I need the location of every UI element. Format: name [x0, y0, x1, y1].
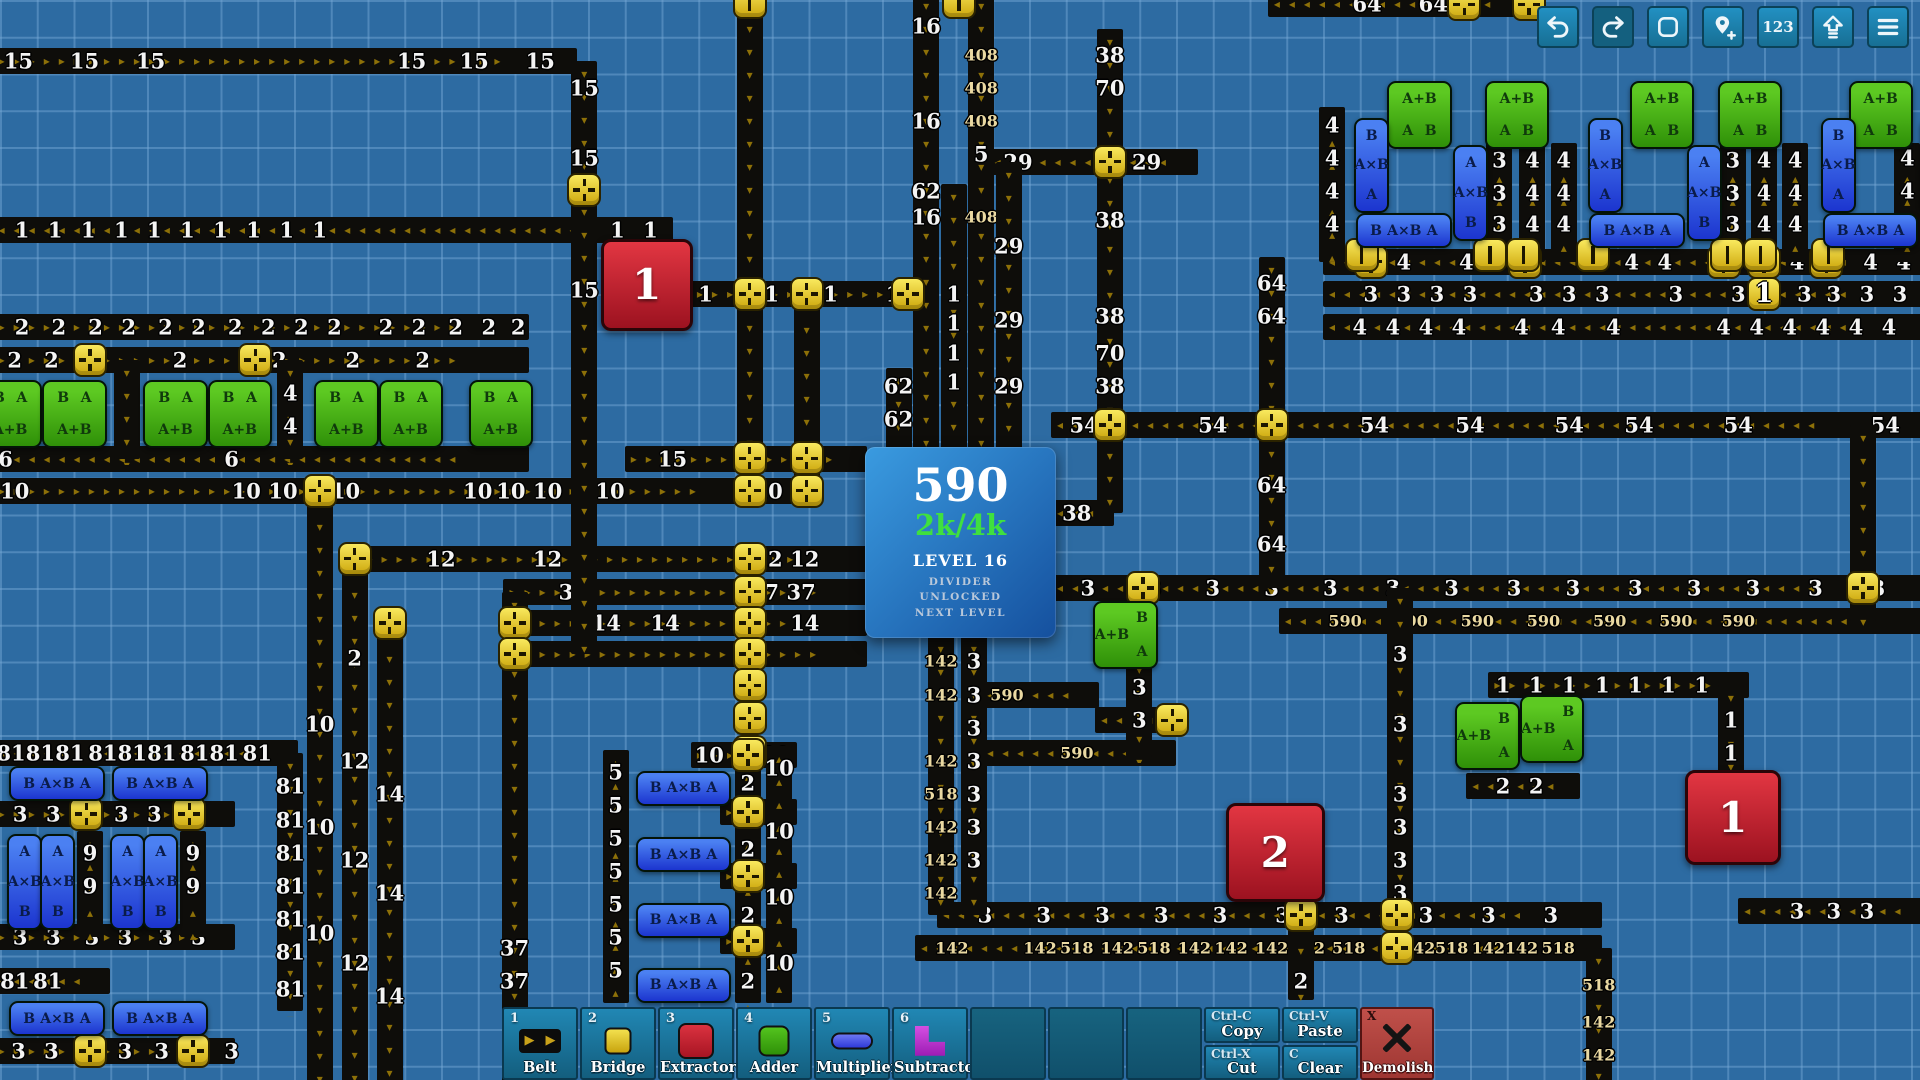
machine-port-label: A — [155, 844, 166, 860]
empty-tool-slot — [1048, 1007, 1124, 1080]
adder-output-col: A+B — [1095, 603, 1128, 667]
conveyor-belt[interactable]: ◂◂◂◂◂◂◂◂◂◂◂333 — [1738, 898, 1920, 924]
belt-item-value: 3 — [967, 814, 982, 839]
belt-item-value: 12 — [533, 546, 562, 571]
machine-adder[interactable]: A+BBA — [1093, 601, 1157, 669]
belt-bridge[interactable] — [1255, 408, 1289, 442]
belt-bridge[interactable] — [1093, 145, 1127, 179]
belt-item-value: 3 — [1397, 282, 1412, 307]
belt-bridge[interactable] — [303, 474, 337, 508]
adder-output-row: A+B — [471, 414, 531, 446]
build-toolbar: 1▶▶Belt2Bridge3Extractor4Adder5Multiplie… — [502, 1007, 1434, 1080]
tool-label: Adder — [738, 1059, 810, 1076]
belt-item-value: 81 — [276, 774, 305, 799]
conveyor-belt[interactable]: ▸▸▸▸▸▸▸▸▸▸▸▸▸▸▸▸▸▸▸▸▸373737 — [503, 579, 867, 605]
adder-inputs-row: AB — [1851, 115, 1911, 147]
belt-item-value: 3 — [1507, 576, 1522, 601]
tool-belt-button[interactable]: 1▶▶Belt — [502, 1007, 578, 1080]
machine-port-label: A — [1893, 223, 1904, 239]
machine-multiplier[interactable]: AA×BB — [7, 834, 42, 930]
machine-adder[interactable]: BAA+B — [42, 380, 106, 448]
machine-adder[interactable]: A+BBA — [1520, 695, 1584, 763]
belt-item-value: 2 — [261, 315, 276, 340]
belt-item-value: 142 — [924, 751, 957, 770]
belt-item-value: 142 — [924, 685, 957, 704]
conveyor-belt[interactable]: ◂◂◂◂◂◂◂◂◂◂◂◂◂◂◂◂◂◂◂◂◂◂◂◂◂◂◂◂◂◂◂◂◂◂◂◂◂◂◂◂… — [1051, 412, 1920, 438]
conveyor-belt[interactable]: ◂◂◂◂◂◂◂◂◂◂◂◂◂◂◂◂◂818181818181818181 — [0, 740, 298, 766]
clear-button[interactable]: CClear — [1282, 1045, 1358, 1080]
belt-item-value: 3 — [1893, 282, 1908, 307]
machine-multiplier[interactable]: BA×BA — [1356, 213, 1452, 248]
conveyor-belt[interactable]: ▴▴▴▴▴▴▴▴▴▴▴▴▴▴5555555 — [603, 750, 629, 1004]
machine-multiplier[interactable]: AA×BB — [40, 834, 75, 930]
box-select-button[interactable] — [1647, 6, 1689, 48]
belt-item-value: 4 — [1514, 315, 1529, 340]
empty-tool-slot — [970, 1007, 1046, 1080]
machine-port-label: B — [1603, 223, 1615, 239]
belt-bridge[interactable] — [1155, 703, 1189, 737]
belt-bridge[interactable] — [733, 668, 767, 702]
conveyor-belt[interactable]: ◂◂◂◂◂◂8181 — [0, 968, 110, 994]
conveyor-belt[interactable]: ▴▴▴▴▴▴99 — [77, 831, 103, 938]
belt-bridge[interactable] — [567, 173, 601, 207]
belt-item-value: 15 — [570, 146, 599, 171]
machine-multiplier[interactable]: BA×BA — [112, 766, 208, 801]
belt-direction-arrows: ▾▾▾▾▾▾▾▾▾▾▾▾▾▾▾▾▾▾▾▾▾▾▾▾▾▾▾ — [377, 623, 403, 1080]
belt-bridge[interactable] — [73, 343, 107, 377]
belt-bridge[interactable] — [172, 797, 206, 831]
belt-item-value: 54 — [1198, 412, 1227, 437]
conveyor-belt[interactable]: ▸▸▸▸▸▸▸▸▸▸▸▸▸▸▸▸▸▸▸▸▸▸▸▸▸▸▸▸▸▸12121212 — [345, 546, 867, 572]
belt-item-value: 408 — [965, 46, 998, 65]
conveyor-belt[interactable]: ▴▴▴▴▴▴▴▴▴4444 — [1319, 107, 1345, 262]
belt-item-value: 10 — [463, 478, 492, 503]
belt-item-value: 5 — [608, 858, 623, 883]
belt-bridge[interactable] — [1093, 408, 1127, 442]
machine-adder[interactable]: BAA+B — [469, 380, 533, 448]
belt-item-value: 3 — [1797, 282, 1812, 307]
tool-hotkey: 1 — [510, 1011, 519, 1026]
tool-bridge-button[interactable]: 2Bridge — [580, 1007, 656, 1080]
belt-bridge[interactable] — [731, 795, 765, 829]
menu-button[interactable] — [1867, 6, 1909, 48]
machine-port-label: A — [1499, 745, 1510, 761]
conveyor-belt[interactable]: ◂◂◂◂◂◂◂◂◂◂◂◂◂◂◂◂◂◂◂◂◂◂◂◂◂◂◂◂◂◂◂◂◂◂◂44444… — [1323, 314, 1920, 340]
machine-port[interactable] — [942, 0, 976, 19]
numbers-overlay-label: 123 — [1762, 18, 1793, 36]
numbers-overlay-button[interactable]: 123 — [1757, 6, 1799, 48]
goal-level-label: LEVEL 16 — [913, 551, 1008, 570]
belt-bridge[interactable] — [790, 277, 824, 311]
conveyor-belt[interactable]: ◂◂◂◂◂◂◂◂◂◂◂◂◂◂◂◂◂◂◂◂◂◂◂◂◂◂◂◂◂◂◂66 — [0, 446, 529, 472]
belt-item-value: 10 — [232, 478, 261, 503]
machine-multiplier[interactable]: AA×BB — [143, 834, 178, 930]
belt-item-value: 2 — [1496, 774, 1511, 799]
machine-adder[interactable]: A+BAB — [1387, 81, 1451, 149]
conveyor-belt[interactable]: ◂◂◂◂◂◂22 — [1466, 773, 1580, 799]
extractor[interactable]: 2 — [1226, 803, 1325, 902]
belt-bridge[interactable] — [1846, 571, 1880, 605]
machine-adder[interactable]: BAA+B — [143, 380, 207, 448]
conveyor-belt[interactable]: ▸▸▸▸▸▸▸▸▸▸▸▸▸▸▸▸▸▸▸▸▸▸▸▸▸▸▸▸▸▸▸▸▸▸▸▸▸▸▸▸… — [0, 478, 809, 504]
conveyor-belt[interactable]: ▾▾▾▾▾▾▾▾▾▾▾▾▾▾▾▾▾▾▾▾▾▾▾▾▾▾▾▾▾▾▾▾▾▾151515 — [571, 61, 597, 655]
belt-item-value: 590 — [1659, 612, 1692, 631]
belt-item-value: 1 — [946, 370, 961, 395]
belt-item-value: 4 — [1788, 147, 1803, 172]
pin-plus-icon — [1710, 14, 1737, 41]
machine-op-label: A×B — [667, 977, 701, 993]
machine-multiplier[interactable]: AA×BB — [1453, 145, 1488, 241]
machine-multiplier[interactable]: BA×BA — [636, 903, 732, 938]
belt-item-value: 4 — [1452, 315, 1467, 340]
belt-bridge[interactable] — [731, 859, 765, 893]
action-label: Copy — [1206, 1022, 1278, 1040]
belt-item-value: 81 — [0, 741, 26, 766]
belt-bridge[interactable] — [1380, 898, 1414, 932]
conveyor-belt[interactable]: ▾▾▾▾▾▾▾▾▾▾▾▾▾▾▾▾▾▾▾▾▾▾▾▾▾▾▾ — [737, 0, 763, 459]
machine-multiplier[interactable]: BA×BA — [636, 837, 732, 872]
tool-hotkey: 2 — [588, 1011, 597, 1026]
conveyor-belt[interactable]: ▸▸▸▸▸▸▸▸▸▸▸▸▸▸▸▸▸▸▸▸▸ — [503, 641, 867, 667]
copy-button[interactable]: Ctrl-CCopy — [1204, 1007, 1280, 1043]
belt-bridge[interactable] — [790, 474, 824, 508]
tool-hotkey: 5 — [822, 1011, 831, 1026]
machine-port-label: B — [19, 904, 31, 920]
belt-item-value: 9 — [186, 873, 201, 898]
conveyor-belt[interactable]: ▸▸▸▸▸▸▸▸▸▸▸▸▸▸▸▸▸▸▸▸▸▸▸▸▸▸▸▸▸▸▸▸▸▸151515… — [0, 48, 577, 74]
machine-op-label: A+B — [1500, 91, 1534, 107]
belt-item-value: 1 — [15, 217, 30, 242]
belt-bridge[interactable] — [733, 474, 767, 508]
belt-bridge[interactable] — [733, 701, 767, 735]
conveyor-belt[interactable]: ▾▾▾▾▾▾▾▾▾▾▾▾▾▾▾▾▾▾▾▾▾▾▾▾▾▾▾141414 — [377, 623, 403, 1080]
machine-multiplier[interactable]: BA×BA — [1588, 118, 1623, 214]
belt-item-value: 3 — [1132, 708, 1147, 733]
undo-button[interactable] — [1537, 6, 1579, 48]
upgrade-button[interactable] — [1812, 6, 1854, 48]
belt-item-value: 5 — [608, 792, 623, 817]
conveyor-belt[interactable]: ▸▸▸▸▸▸▸▸▸▸▸▸▸▸▸▸▸▸▸▸▸141414 — [503, 610, 867, 636]
belt-item-value: 70 — [1095, 76, 1124, 101]
belt-item-value: 81 — [55, 741, 84, 766]
belt-item-value: 3 — [1393, 711, 1408, 736]
belt-bridge[interactable] — [1380, 931, 1414, 965]
belt-item-value: 3 — [1731, 282, 1746, 307]
conveyor-belt[interactable]: ▾▾▾▾▾▾▾▾▾▾▾▾▾▾▾▾▾▾▾333333 — [1387, 588, 1413, 915]
machine-adder[interactable]: A+BAB — [1485, 81, 1549, 149]
belt-item-value: 10 — [268, 478, 297, 503]
belt-item-value: 590 — [1722, 612, 1755, 631]
belt-item-value: 12 — [340, 748, 369, 773]
machine-adder[interactable]: A+BAB — [1849, 81, 1913, 149]
belt-item-value: 29 — [994, 234, 1023, 259]
adder-inputs-row: BA — [316, 382, 376, 414]
belt-bridge[interactable] — [69, 797, 103, 831]
belt-bridge[interactable] — [731, 738, 765, 772]
belt-direction-arrows: ◂◂◂◂◂◂◂◂◂◂◂◂◂◂◂◂◂◂◂◂◂◂◂◂◂◂◂◂◂◂◂◂◂◂◂◂◂◂◂◂… — [1051, 575, 1920, 601]
belt-bridge[interactable] — [790, 441, 824, 475]
conveyor-belt[interactable]: ▴▴▴▴▴▴99 — [180, 831, 206, 938]
machine-adder[interactable]: A+BBA — [1455, 702, 1519, 770]
machine-op-label: A+B — [484, 422, 518, 438]
conveyor-belt[interactable]: ◂◂◂◂◂◂◂◂◂◂◂◂◂◂◂◂◂◂◂◂◂◂◂◂◂◂◂◂◂◂◂◂◂◂◂◂◂◂59… — [1279, 608, 1920, 634]
belt-bridge[interactable] — [1126, 571, 1160, 605]
machine-port-label: B — [1698, 215, 1710, 231]
belt-item-value: 10 — [0, 478, 29, 503]
belt-item-value: 62 — [911, 179, 940, 204]
belt-item-value: 3 — [1363, 282, 1378, 307]
machine-multiplier[interactable]: AA×BB — [110, 834, 145, 930]
conveyor-belt[interactable]: ▴▴▴▴▴▴444 — [1551, 143, 1577, 261]
tool-label: Extractor — [660, 1059, 732, 1076]
belt-item-value: 12 — [340, 847, 369, 872]
conveyor-belt[interactable]: ◂◂◂◂◂◂◂◂◂◂◂◂◂◂◂◂◂◂◂◂◂◂◂◂◂◂◂◂◂◂◂◂◂◂◂◂◂◂◂◂… — [915, 935, 1602, 961]
conveyor-belt[interactable]: ▾▾▾▾▾▾▾▾▾▾▾▾▾▾▾▾142142142518142142142 — [928, 636, 954, 915]
belt-bridge[interactable] — [1284, 898, 1318, 932]
belt-item-value: 1 — [946, 340, 961, 365]
machine-port-label: A — [182, 390, 193, 406]
belt-item-value: 1 — [81, 217, 96, 242]
machine-port[interactable] — [1743, 238, 1777, 272]
belt-item-value: 4 — [1657, 249, 1672, 274]
belt-item-value: 15 — [4, 48, 33, 73]
conveyor-belt[interactable]: ▴▴▴▴▴▴444 — [1782, 143, 1808, 261]
machine-adder[interactable]: A+BAB — [1630, 81, 1694, 149]
cut-button[interactable]: Ctrl-XCut — [1204, 1045, 1280, 1080]
extractor[interactable]: 1 — [1685, 770, 1781, 866]
belt-item-value: 62 — [884, 373, 913, 398]
belt-item-value: 37 — [500, 936, 529, 961]
belt-bridge[interactable] — [733, 441, 767, 475]
conveyor-belt[interactable]: ▸▸▸▸▸▸▸▸▸▸▸▸▸▸▸▸▸▸▸▸▸▸▸▸▸▸▸▸▸▸▸222222222… — [0, 314, 529, 340]
machine-port-label: A — [1864, 123, 1875, 139]
conveyor-belt[interactable]: ◂◂◂◂◂◂◂◂◂◂◂◂◂◂◂◂◂◂◂◂◂◂◂◂◂◂◂◂◂◂◂◂◂◂◂◂◂◂◂3… — [937, 902, 1602, 928]
add-waypoint-button[interactable] — [1702, 6, 1744, 48]
belt-item-value: 16 — [911, 204, 940, 229]
machine-port-label: B — [126, 776, 138, 792]
goal-unlock-text: DIVIDER UNLOCKED NEXT LEVEL — [915, 575, 1006, 622]
conveyor-belt[interactable]: ◂◂◂◂◂◂◂◂◂◂◂◂◂◂◂◂◂◂◂◂◂◂◂◂◂◂◂◂◂◂◂◂◂◂◂◂◂◂◂◂… — [1051, 575, 1920, 601]
belt-bridge[interactable] — [731, 924, 765, 958]
belt-item-value: 3 — [1790, 899, 1805, 924]
machine-multiplier[interactable]: BA×BA — [1354, 118, 1389, 214]
adder-inputs-row: AB — [1632, 115, 1692, 147]
belt-item-value: 12 — [340, 950, 369, 975]
conveyor-belt[interactable]: ◂◂◂◂◂◂590 — [981, 682, 1099, 708]
belt-item-value: 70 — [1095, 340, 1124, 365]
tool-subtractor-button[interactable]: 6Subtractor — [892, 1007, 968, 1080]
conveyor-belt[interactable]: ▾▾▾▾▾▾▾▾▾▾▾▾▾▾▾▾▾▾▾▾▾▾▾▾▾▾▾16166216 — [913, 0, 939, 452]
belt-item-value: 2 — [44, 348, 59, 373]
machine-port-label: A — [706, 912, 717, 928]
tool-label: Bridge — [582, 1059, 654, 1076]
conveyor-belt[interactable]: ▾▾▾▾6262 — [886, 368, 912, 453]
belt-bridge[interactable] — [733, 575, 767, 609]
tool-adder-button[interactable]: 4Adder — [736, 1007, 812, 1080]
machine-op-label: A×B — [143, 1011, 177, 1027]
extractor[interactable]: 1 — [601, 239, 693, 331]
adder-inputs-row: AB — [1389, 115, 1449, 147]
machine-op-label: A+B — [223, 422, 257, 438]
machine-multiplier[interactable]: BA×BA — [636, 771, 732, 806]
conveyor-belt[interactable]: ▾▾▾▾▾▾▾▾▾▾▾▾▾▾▾1111 — [941, 184, 967, 452]
conveyor-belt[interactable]: ▾▾▾▾▾▾▾▾▾▾▾▾▾▾▾▾3333333 — [961, 636, 987, 915]
belt-item-value: 15 — [397, 48, 426, 73]
machine-adder[interactable]: BAA+B — [379, 380, 443, 448]
belt-direction-arrows: ▾▾▾▾▾▾▾▾▾▾▾▾▾▾▾▾▾▾▾▾▾▾▾▾▾▾▾▾▾▾▾▾▾▾ — [307, 491, 333, 1080]
game-viewport[interactable]: ▸▸▸▸▸▸▸▸▸▸▸▸▸▸▸▸▸▸▸▸▸▸▸▸▸▸▸▸▸▸▸▸▸▸151515… — [0, 0, 1920, 1080]
tool-multiplier-button[interactable]: 5Multiplier — [814, 1007, 890, 1080]
conveyor-belt[interactable]: ▾▾▾▾▾▾▾▾▾▾▾▾▾▾▾▾▾292929 — [996, 162, 1022, 452]
belt-bridge[interactable] — [733, 606, 767, 640]
tool-hotkey: 4 — [744, 1011, 753, 1026]
belt-item-value: 518 — [1332, 939, 1365, 958]
adder-output-row: A+B — [210, 414, 270, 446]
belt-item-value: 4 — [1749, 315, 1764, 340]
machine-port-label: A — [1465, 155, 1476, 171]
adder-output-row: A+B — [1487, 83, 1547, 115]
belt-item-value: 3 — [154, 1039, 169, 1064]
belt-item-value: 2 — [7, 348, 22, 373]
belt-item-value: 2 — [15, 315, 30, 340]
belt-item-value: 1 — [246, 217, 261, 242]
belt-item-value: 142 — [1023, 939, 1056, 958]
machine-port-label: A — [183, 1011, 194, 1027]
machine-port-label: B — [155, 904, 167, 920]
belt-item-value: 81 — [147, 741, 176, 766]
conveyor-belt[interactable]: ▾▾▾▾▾11 — [1718, 685, 1744, 779]
machine-port-label: B — [122, 904, 134, 920]
action-label: Paste — [1284, 1022, 1356, 1040]
machine-port-label: B — [650, 912, 662, 928]
belt-item-value: 2 — [158, 315, 173, 340]
machine-port-label: A — [246, 390, 257, 406]
machine-multiplier[interactable]: BA×BA — [636, 968, 732, 1003]
belt-item-value: 3 — [1393, 847, 1408, 872]
conveyor-belt[interactable]: ▴▴▴▴▴▴▴▴▴▴▴▴▴▴▴10101010 — [766, 746, 792, 1003]
belt-item-value: 3 — [1860, 282, 1875, 307]
belt-bridge[interactable] — [373, 606, 407, 640]
belt-item-value: 2 — [415, 348, 430, 373]
belt-bridge[interactable] — [498, 637, 532, 671]
tool-extractor-button[interactable]: 3Extractor — [658, 1007, 734, 1080]
belt-item-value: 4 — [1325, 112, 1340, 137]
belt-item-value: 2 — [741, 969, 756, 994]
machine-port-label: A — [80, 776, 91, 792]
machine-port[interactable] — [1506, 238, 1540, 272]
belt-item-value: 64 — [1257, 531, 1286, 556]
machine-port-label: A — [1833, 187, 1844, 203]
machine-multiplier[interactable]: BA×BA — [1821, 118, 1856, 214]
machine-op-label: A×B — [1354, 157, 1388, 173]
belt-bridge[interactable] — [733, 542, 767, 576]
machine-port[interactable]: 1 — [1747, 277, 1781, 311]
machine-op-label: A+B — [329, 422, 363, 438]
belt-item-value: 15 — [570, 278, 599, 303]
machine-multiplier[interactable]: BA×BA — [1823, 213, 1919, 248]
belt-item-value: 3 — [1860, 899, 1875, 924]
conveyor-belt[interactable]: ▾▾▾▾▾▾▾▾▾▾▾▾▾▾▾▾▾▾▾▾▾▾▾▾▾▾▾▾▾▾2121212 — [342, 559, 368, 1080]
conveyor-belt[interactable]: ▾▾▾▾▾44 — [277, 360, 303, 459]
belt-item-value: 1 — [279, 217, 294, 242]
redo-button[interactable] — [1592, 6, 1634, 48]
belt-item-value: 2 — [228, 315, 243, 340]
belt-bridge[interactable] — [498, 606, 532, 640]
up-arrow-icon — [1820, 14, 1846, 40]
belt-item-value: 81 — [276, 906, 305, 931]
conveyor-belt[interactable]: ◂◂◂◂◂◂◂◂◂◂◂◂◂◂◂6464 — [1268, 0, 1533, 17]
machine-adder[interactable]: A+BAB — [1718, 81, 1782, 149]
belt-item-value: 1 — [946, 282, 961, 307]
machine-port-label: A — [1699, 155, 1710, 171]
belt-item-value: 3 — [118, 1039, 133, 1064]
belt-bridge[interactable] — [338, 542, 372, 576]
redo-icon — [1599, 13, 1627, 41]
belt-item-value: 3 — [1808, 576, 1823, 601]
goal-panel[interactable]: 590 2k/4k LEVEL 16 DIVIDER UNLOCKED NEXT… — [865, 447, 1056, 638]
machine-adder[interactable]: BAA+B — [0, 380, 42, 448]
machine-adder[interactable]: BAA+B — [314, 380, 378, 448]
machine-port-label: A — [80, 1011, 91, 1027]
belt-item-value: 3 — [1595, 282, 1610, 307]
belt-item-value: 1 — [114, 217, 129, 242]
conveyor-belt[interactable]: ▾▾▾▾▾▾▾▾▾▾▾▾▾▾▾▾▾▾▾▾▾▾▾▾▾▾▾▾▾▾▾▾▾▾101010 — [307, 491, 333, 1080]
belt-item-value: 3 — [46, 802, 61, 827]
conveyor-belt[interactable]: ▾▾▾▾▾▾▾▾▾▾▾▾▾▾▾▾▾▾▾▾▾▾▾▾▾▾▾4084084085408 — [968, 0, 994, 452]
belt-bridge[interactable] — [733, 637, 767, 671]
machine-port[interactable] — [1473, 238, 1507, 272]
machine-multiplier[interactable]: BA×BA — [9, 766, 105, 801]
conveyor-belt[interactable]: ▾▾▾▾▾▾▾▾▾▾▾▾▾▾▾81818181818181 — [277, 753, 303, 1010]
conveyor-belt[interactable]: ◂◂◂◂◂◂◂◂◂◂◂◂◂◂◂◂◂◂◂◂◂◂◂◂◂◂◂◂◂◂◂◂◂◂◂33333… — [1323, 281, 1920, 307]
belt-item-value: 4 — [1525, 212, 1540, 237]
belt-item-value: 2 — [51, 315, 66, 340]
belt-item-value: 3 — [1430, 282, 1445, 307]
machine-adder[interactable]: BAA+B — [208, 380, 272, 448]
demolish-button[interactable]: XDemolish — [1360, 1007, 1434, 1080]
belt-item-value: 16 — [911, 109, 940, 134]
belt-bridge[interactable] — [733, 277, 767, 311]
machine-multiplier[interactable]: AA×BB — [1687, 145, 1722, 241]
belt-bridge[interactable] — [176, 1034, 210, 1068]
belt-item-value: 3 — [1393, 642, 1408, 667]
belt-item-value: 408 — [965, 79, 998, 98]
adder-output-row: A+B — [1389, 83, 1449, 115]
machine-port[interactable] — [733, 0, 767, 19]
belt-bridge[interactable] — [73, 1034, 107, 1068]
machine-op-label: A×B — [667, 847, 701, 863]
machine-port[interactable] — [1710, 238, 1744, 272]
machine-multiplier[interactable]: BA×BA — [112, 1001, 208, 1036]
machine-multiplier[interactable]: BA×BA — [1589, 213, 1685, 248]
paste-button[interactable]: Ctrl-VPaste — [1282, 1007, 1358, 1043]
conveyor-belt[interactable]: ▾▾▾▾▾▾▾518142142 — [1586, 948, 1612, 1080]
belt-bridge[interactable] — [891, 277, 925, 311]
action-label: Demolish — [1362, 1060, 1432, 1076]
conveyor-belt[interactable]: ▾▾▾▾▾ — [114, 360, 140, 459]
belt-item-value: 4 — [1419, 315, 1434, 340]
belt-item-value: 14 — [790, 610, 819, 635]
belt-item-value: 1 — [147, 217, 162, 242]
belt-bridge[interactable] — [238, 343, 272, 377]
belt-item-value: 15 — [70, 48, 99, 73]
belt-item-value: 4 — [1459, 249, 1474, 274]
machine-multiplier[interactable]: BA×BA — [9, 1001, 105, 1036]
belt-item-value: 142 — [935, 939, 968, 958]
belt-bridge[interactable] — [1447, 0, 1481, 21]
belt-item-value: 10 — [695, 743, 724, 768]
machine-port-label: A — [81, 390, 92, 406]
